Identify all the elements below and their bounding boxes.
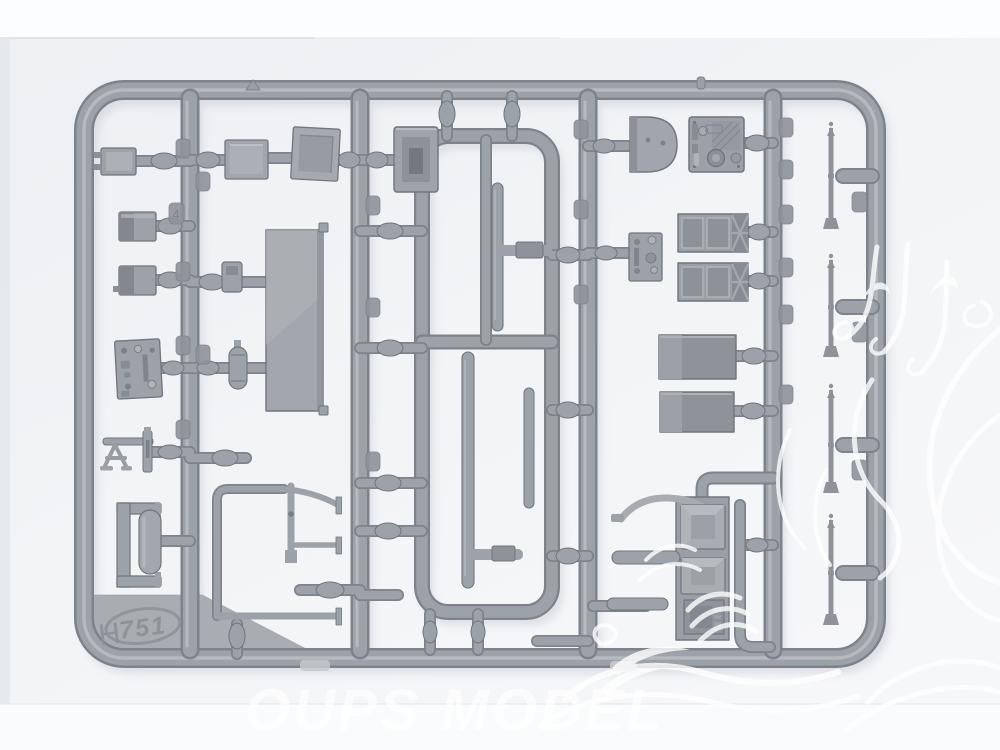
watermark-text: OUPS MODEL xyxy=(245,678,665,743)
part-d-cover xyxy=(630,117,677,172)
part-number-4: 4 xyxy=(172,207,179,222)
part-large-flat-panel xyxy=(266,223,328,415)
backdrop-top-paper-edge xyxy=(0,0,1000,38)
part-storage-box-1 xyxy=(659,335,736,379)
part-slotted-box xyxy=(394,127,438,192)
part-square-box xyxy=(225,140,268,179)
part-battery-box-2 xyxy=(113,266,156,295)
part-radiator-1 xyxy=(678,214,748,252)
runner-nub xyxy=(697,77,705,89)
part-instrument-panel xyxy=(689,117,744,172)
part-rimmed-plate xyxy=(291,127,341,181)
sprue-photo: 4 xyxy=(0,0,1000,750)
bottom-tab xyxy=(300,660,330,671)
backdrop-left-shade xyxy=(0,38,10,708)
part-battery-box-1 xyxy=(119,212,156,241)
part-firewall-plate xyxy=(115,339,163,399)
part-storage-box-2 xyxy=(660,392,734,432)
part-small-tab xyxy=(222,262,242,292)
part-small-detail-plate xyxy=(629,233,662,281)
part-radiator-2 xyxy=(678,263,748,301)
sprue-photo-canvas: 4 xyxy=(0,0,1000,750)
mold-number: 751 xyxy=(118,611,169,645)
